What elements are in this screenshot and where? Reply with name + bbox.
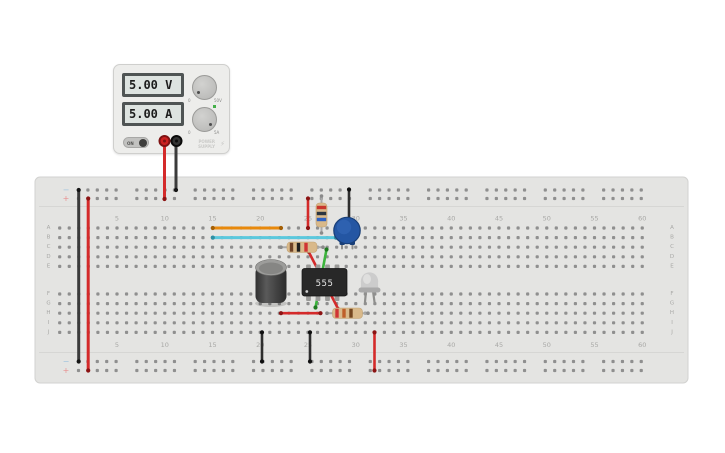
breadboard-hole: [517, 292, 520, 295]
breadboard-hole: [544, 369, 547, 372]
rail-jumper-black[interactable]: [77, 188, 81, 364]
rail-jumper-red-end: [86, 196, 90, 200]
breadboard-hole: [287, 292, 290, 295]
breadboard-hole: [459, 246, 462, 249]
breadboard-hole: [345, 265, 348, 268]
breadboard-hole: [364, 265, 367, 268]
breadboard-hole: [611, 197, 614, 200]
cyan-wire-rowB-end: [211, 236, 215, 240]
breadboard-hole: [135, 292, 138, 295]
column-number-label: 45: [495, 341, 503, 349]
column-number-label: 40: [447, 341, 455, 349]
breadboard-hole: [297, 302, 300, 305]
breadboard-hole: [574, 246, 577, 249]
breadboard-hole: [220, 312, 223, 315]
breadboard-hole: [173, 302, 176, 305]
breadboard-hole: [526, 331, 529, 334]
breadboard-hole: [68, 312, 71, 315]
breadboard-hole: [115, 312, 118, 315]
breadboard-hole: [96, 226, 99, 229]
breadboard-hole: [536, 255, 539, 258]
breadboard-hole: [144, 302, 147, 305]
breadboard-hole: [201, 292, 204, 295]
breadboard-hole: [261, 188, 264, 191]
orange-wire-rowA[interactable]: [211, 226, 283, 230]
breadboard-hole: [378, 197, 381, 200]
breadboard-hole: [271, 197, 274, 200]
breadboard-hole: [555, 331, 558, 334]
ic-555[interactable]: 555: [302, 265, 347, 302]
breadboard-hole: [222, 360, 225, 363]
breadboard-hole: [335, 246, 338, 249]
breadboard-hole: [640, 197, 643, 200]
breadboard-hole: [641, 236, 644, 239]
resistor-rowC-band: [290, 243, 293, 252]
psu-terminal-positive[interactable]: [160, 136, 170, 146]
breadboard-hole: [526, 265, 529, 268]
breadboard-hole: [402, 246, 405, 249]
breadboard-hole: [622, 302, 625, 305]
resistor-rowC-lead-end: [321, 245, 325, 249]
breadboard-hole: [182, 331, 185, 334]
breadboard-hole: [583, 312, 586, 315]
breadboard-hole: [593, 312, 596, 315]
breadboard-hole: [536, 331, 539, 334]
breadboard-hole: [115, 321, 118, 324]
breadboard-hole: [465, 369, 468, 372]
breadboard-hole: [402, 331, 405, 334]
breadboard-hole: [182, 321, 185, 324]
breadboard-hole: [478, 331, 481, 334]
breadboard-hole: [329, 197, 332, 200]
breadboard-hole: [631, 321, 634, 324]
breadboard-hole: [478, 236, 481, 239]
red-wire-J32-plus-end: [372, 330, 376, 334]
orange-wire-rowA-end: [211, 226, 215, 230]
breadboard-hole: [125, 226, 128, 229]
row-letter-label: C: [47, 244, 51, 250]
breadboard-hole: [612, 302, 615, 305]
breadboard-hole: [427, 369, 430, 372]
row-letter-label: D: [670, 254, 674, 260]
breadboard-hole: [536, 312, 539, 315]
breadboard-hole: [354, 265, 357, 268]
breadboard-hole: [440, 226, 443, 229]
psu-terminal-negative-center: [175, 140, 178, 143]
breadboard-hole: [144, 255, 147, 258]
breadboard-hole: [517, 255, 520, 258]
breadboard-hole: [182, 236, 185, 239]
breadboard-hole: [201, 321, 204, 324]
breadboard-hole: [621, 197, 624, 200]
breadboard-hole: [135, 321, 138, 324]
breadboard-hole: [612, 292, 615, 295]
breadboard-hole: [564, 321, 567, 324]
breadboard-hole: [96, 369, 99, 372]
breadboard-hole: [602, 321, 605, 324]
breadboard-hole: [621, 188, 624, 191]
breadboard-hole: [427, 197, 430, 200]
breadboard-hole: [211, 302, 214, 305]
breadboard-hole: [631, 246, 634, 249]
breadboard-hole: [249, 312, 252, 315]
breadboard-hole: [364, 246, 367, 249]
row-letter-label: F: [47, 291, 50, 297]
breadboard-hole: [192, 292, 195, 295]
rail-minus-sign: −: [63, 357, 70, 366]
breadboard-hole: [154, 236, 157, 239]
breadboard-hole: [450, 312, 453, 315]
breadboard-hole: [173, 331, 176, 334]
breadboard-hole: [252, 360, 255, 363]
breadboard-hole: [240, 246, 243, 249]
breadboard-hole: [125, 331, 128, 334]
breadboard-hole: [612, 246, 615, 249]
breadboard-hole: [545, 255, 548, 258]
breadboard-hole: [280, 360, 283, 363]
breadboard-hole: [440, 321, 443, 324]
breadboard-hole: [211, 292, 214, 295]
breadboard-hole: [563, 197, 566, 200]
breadboard-hole: [497, 246, 500, 249]
breadboard-hole: [545, 312, 548, 315]
breadboard-hole: [564, 265, 567, 268]
breadboard-hole: [373, 312, 376, 315]
breadboard-hole: [641, 246, 644, 249]
row-letter-label: G: [670, 301, 674, 307]
breadboard-hole: [212, 188, 215, 191]
breadboard-hole: [602, 265, 605, 268]
breadboard-hole: [144, 331, 147, 334]
breadboard-hole: [495, 369, 498, 372]
breadboard-hole: [544, 197, 547, 200]
row-letter-label: G: [46, 301, 50, 307]
breadboard-hole: [622, 255, 625, 258]
breadboard-hole: [373, 226, 376, 229]
breadboard-hole: [231, 197, 234, 200]
breadboard-hole: [581, 360, 584, 363]
breadboard-hole: [354, 246, 357, 249]
breadboard-hole: [436, 360, 439, 363]
breadboard-hole: [240, 321, 243, 324]
red-wire-plus-to-A25-end: [306, 226, 310, 230]
breadboard-hole: [106, 312, 109, 315]
breadboard-hole: [450, 321, 453, 324]
breadboard-hole: [523, 360, 526, 363]
breadboard-hole: [526, 246, 529, 249]
breadboard-hole: [517, 312, 520, 315]
breadboard-hole: [602, 188, 605, 191]
breadboard-hole: [612, 265, 615, 268]
row-letter-label: H: [46, 310, 50, 316]
breadboard-hole: [406, 360, 409, 363]
breadboard-hole: [497, 321, 500, 324]
breadboard-hole: [280, 188, 283, 191]
breadboard-hole: [583, 292, 586, 295]
breadboard-hole: [402, 255, 405, 258]
breadboard-hole: [564, 302, 567, 305]
breadboard-hole: [612, 331, 615, 334]
breadboard-hole: [402, 321, 405, 324]
breadboard-hole: [497, 265, 500, 268]
capacitor-blue-highlight: [337, 220, 351, 234]
breadboard-hole: [641, 226, 644, 229]
breadboard-hole: [173, 255, 176, 258]
breadboard-hole: [478, 321, 481, 324]
green-wire-diagonal-end: [313, 305, 317, 309]
breadboard-hole: [383, 312, 386, 315]
breadboard-hole: [154, 321, 157, 324]
breadboard-hole: [290, 188, 293, 191]
breadboard-hole: [564, 236, 567, 239]
breadboard-hole: [411, 236, 414, 239]
breadboard-hole: [507, 331, 510, 334]
breadboard-hole: [387, 188, 390, 191]
breadboard-hole: [602, 236, 605, 239]
breadboard-hole: [507, 265, 510, 268]
cyan-wire-rowB[interactable]: [211, 236, 338, 240]
rail-jumper-red-end: [86, 368, 90, 372]
column-number-label: 50: [543, 341, 551, 349]
breadboard-hole: [583, 246, 586, 249]
breadboard-hole: [173, 236, 176, 239]
breadboard-hole: [523, 188, 526, 191]
breadboard-hole: [268, 331, 271, 334]
breadboard-hole: [497, 292, 500, 295]
psu-terminal-negative[interactable]: [172, 136, 182, 146]
breadboard-hole: [507, 246, 510, 249]
column-number-label: 55: [590, 215, 598, 223]
breadboard-hole: [154, 246, 157, 249]
breadboard-hole: [488, 255, 491, 258]
breadboard-hole: [230, 331, 233, 334]
column-number-label: 55: [590, 341, 598, 349]
breadboard-hole: [106, 321, 109, 324]
breadboard-hole: [392, 246, 395, 249]
breadboard-hole: [106, 302, 109, 305]
breadboard-hole: [507, 255, 510, 258]
breadboard-hole: [392, 292, 395, 295]
breadboard-hole: [211, 331, 214, 334]
breadboard-hole: [488, 265, 491, 268]
breadboard-hole: [231, 188, 234, 191]
electrolytic-capacitor[interactable]: [255, 260, 287, 308]
red-wire-rowH-end: [279, 311, 283, 315]
breadboard-hole: [602, 292, 605, 295]
breadboard-hole: [612, 226, 615, 229]
breadboard-hole: [497, 312, 500, 315]
breadboard-hole: [182, 226, 185, 229]
column-number-label: 5: [115, 341, 119, 349]
breadboard-hole: [392, 226, 395, 229]
breadboard-hole: [194, 360, 197, 363]
row-letter-label: J: [670, 329, 673, 335]
breadboard-hole: [68, 292, 71, 295]
breadboard-hole: [115, 331, 118, 334]
row-letter-label: A: [670, 225, 674, 231]
breadboard-hole: [574, 312, 577, 315]
breadboard-hole: [574, 331, 577, 334]
breadboard-hole: [504, 360, 507, 363]
breadboard-hole: [545, 265, 548, 268]
breadboard-hole: [514, 197, 517, 200]
breadboard-hole: [455, 188, 458, 191]
breadboard-hole: [421, 255, 424, 258]
breadboard-hole: [517, 226, 520, 229]
breadboard-hole: [631, 226, 634, 229]
breadboard-hole: [115, 360, 118, 363]
breadboard-hole: [173, 292, 176, 295]
breadboard-hole: [440, 312, 443, 315]
breadboard-hole: [581, 197, 584, 200]
breadboard-hole: [469, 236, 472, 239]
breadboard-hole: [173, 312, 176, 315]
breadboard-hole: [348, 369, 351, 372]
breadboard-hole: [495, 197, 498, 200]
breadboard-hole: [278, 321, 281, 324]
breadboard-hole: [593, 331, 596, 334]
breadboard-hole: [192, 246, 195, 249]
breadboard-hole: [446, 188, 449, 191]
breadboard-hole: [459, 331, 462, 334]
breadboard-hole: [459, 312, 462, 315]
breadboard-hole: [631, 255, 634, 258]
breadboard-hole: [192, 331, 195, 334]
breadboard-hole: [459, 302, 462, 305]
breadboard-hole: [583, 321, 586, 324]
breadboard-hole: [440, 255, 443, 258]
breadboard-hole: [125, 292, 128, 295]
breadboard-hole: [553, 197, 556, 200]
breadboard-hole: [378, 369, 381, 372]
breadboard-hole: [450, 331, 453, 334]
breadboard-hole: [106, 265, 109, 268]
resistor-rowH-lead-end: [325, 311, 329, 315]
breadboard-hole: [240, 302, 243, 305]
breadboard-hole: [397, 360, 400, 363]
breadboard-hole: [201, 255, 204, 258]
breadboard-hole: [252, 188, 255, 191]
breadboard-hole: [106, 331, 109, 334]
breadboard-hole: [106, 226, 109, 229]
black-wire-J25-minus-end: [308, 359, 312, 363]
breadboard-hole: [145, 360, 148, 363]
breadboard-hole: [459, 255, 462, 258]
breadboard-hole: [222, 197, 225, 200]
row-letter-label: H: [670, 310, 674, 316]
breadboard-hole: [545, 302, 548, 305]
breadboard-hole: [450, 236, 453, 239]
rail-jumper-red[interactable]: [86, 196, 90, 372]
breadboard-hole: [431, 321, 434, 324]
breadboard-hole: [593, 292, 596, 295]
breadboard-hole: [630, 188, 633, 191]
breadboard-hole: [154, 312, 157, 315]
breadboard-scene: −+−+510152025303540455055605101520253035…: [0, 0, 725, 453]
breadboard-hole: [211, 255, 214, 258]
breadboard-hole: [249, 255, 252, 258]
breadboard-hole: [326, 331, 329, 334]
breadboard-hole: [431, 302, 434, 305]
breadboard-hole: [115, 369, 118, 372]
breadboard-hole: [421, 302, 424, 305]
breadboard-hole: [427, 188, 430, 191]
breadboard-hole: [536, 292, 539, 295]
breadboard-hole: [526, 236, 529, 239]
breadboard-hole: [631, 236, 634, 239]
breadboard-hole: [173, 321, 176, 324]
breadboard-hole: [259, 321, 262, 324]
breadboard-hole: [271, 360, 274, 363]
breadboard-hole: [602, 226, 605, 229]
breadboard-hole: [182, 246, 185, 249]
red-wire-rowH-end: [318, 311, 322, 315]
breadboard-hole: [68, 236, 71, 239]
breadboard-hole: [203, 188, 206, 191]
breadboard-hole: [96, 236, 99, 239]
breadboard-hole: [249, 265, 252, 268]
breadboard-hole: [106, 292, 109, 295]
breadboard-hole: [450, 292, 453, 295]
breadboard-hole: [397, 369, 400, 372]
breadboard-hole: [154, 331, 157, 334]
breadboard-hole: [345, 255, 348, 258]
breadboard-hole: [411, 302, 414, 305]
breadboard-hole: [58, 331, 61, 334]
row-letter-label: A: [47, 225, 51, 231]
breadboard-hole: [364, 321, 367, 324]
breadboard-hole: [555, 265, 558, 268]
breadboard-hole: [553, 188, 556, 191]
breadboard-hole: [230, 255, 233, 258]
breadboard-hole: [406, 188, 409, 191]
breadboard-hole: [402, 312, 405, 315]
breadboard-hole: [621, 360, 624, 363]
breadboard-hole: [58, 265, 61, 268]
breadboard-hole: [144, 292, 147, 295]
breadboard-hole: [526, 226, 529, 229]
breadboard-hole: [364, 255, 367, 258]
breadboard-hole: [278, 331, 281, 334]
breadboard-hole: [290, 197, 293, 200]
breadboard-hole: [478, 292, 481, 295]
column-number-label: 40: [447, 215, 455, 223]
breadboard-hole: [96, 360, 99, 363]
breadboard-hole: [488, 292, 491, 295]
breadboard-hole: [320, 360, 323, 363]
breadboard-hole: [249, 246, 252, 249]
breadboard-hole: [465, 197, 468, 200]
breadboard-hole: [523, 197, 526, 200]
breadboard-hole: [397, 197, 400, 200]
breadboard-hole: [514, 188, 517, 191]
resistor-vertical-band: [317, 218, 326, 221]
breadboard-hole: [163, 292, 166, 295]
breadboard-hole: [383, 255, 386, 258]
breadboard-hole: [58, 321, 61, 324]
breadboard-hole: [602, 331, 605, 334]
breadboard-hole: [392, 312, 395, 315]
breadboard-hole: [612, 255, 615, 258]
breadboard-hole: [581, 369, 584, 372]
breadboard-hole: [339, 360, 342, 363]
breadboard-hole: [611, 188, 614, 191]
column-number-label: 45: [495, 215, 503, 223]
breadboard-hole: [469, 331, 472, 334]
breadboard-hole: [194, 188, 197, 191]
breadboard-hole: [339, 188, 342, 191]
resistor-vertical-band: [317, 212, 326, 215]
